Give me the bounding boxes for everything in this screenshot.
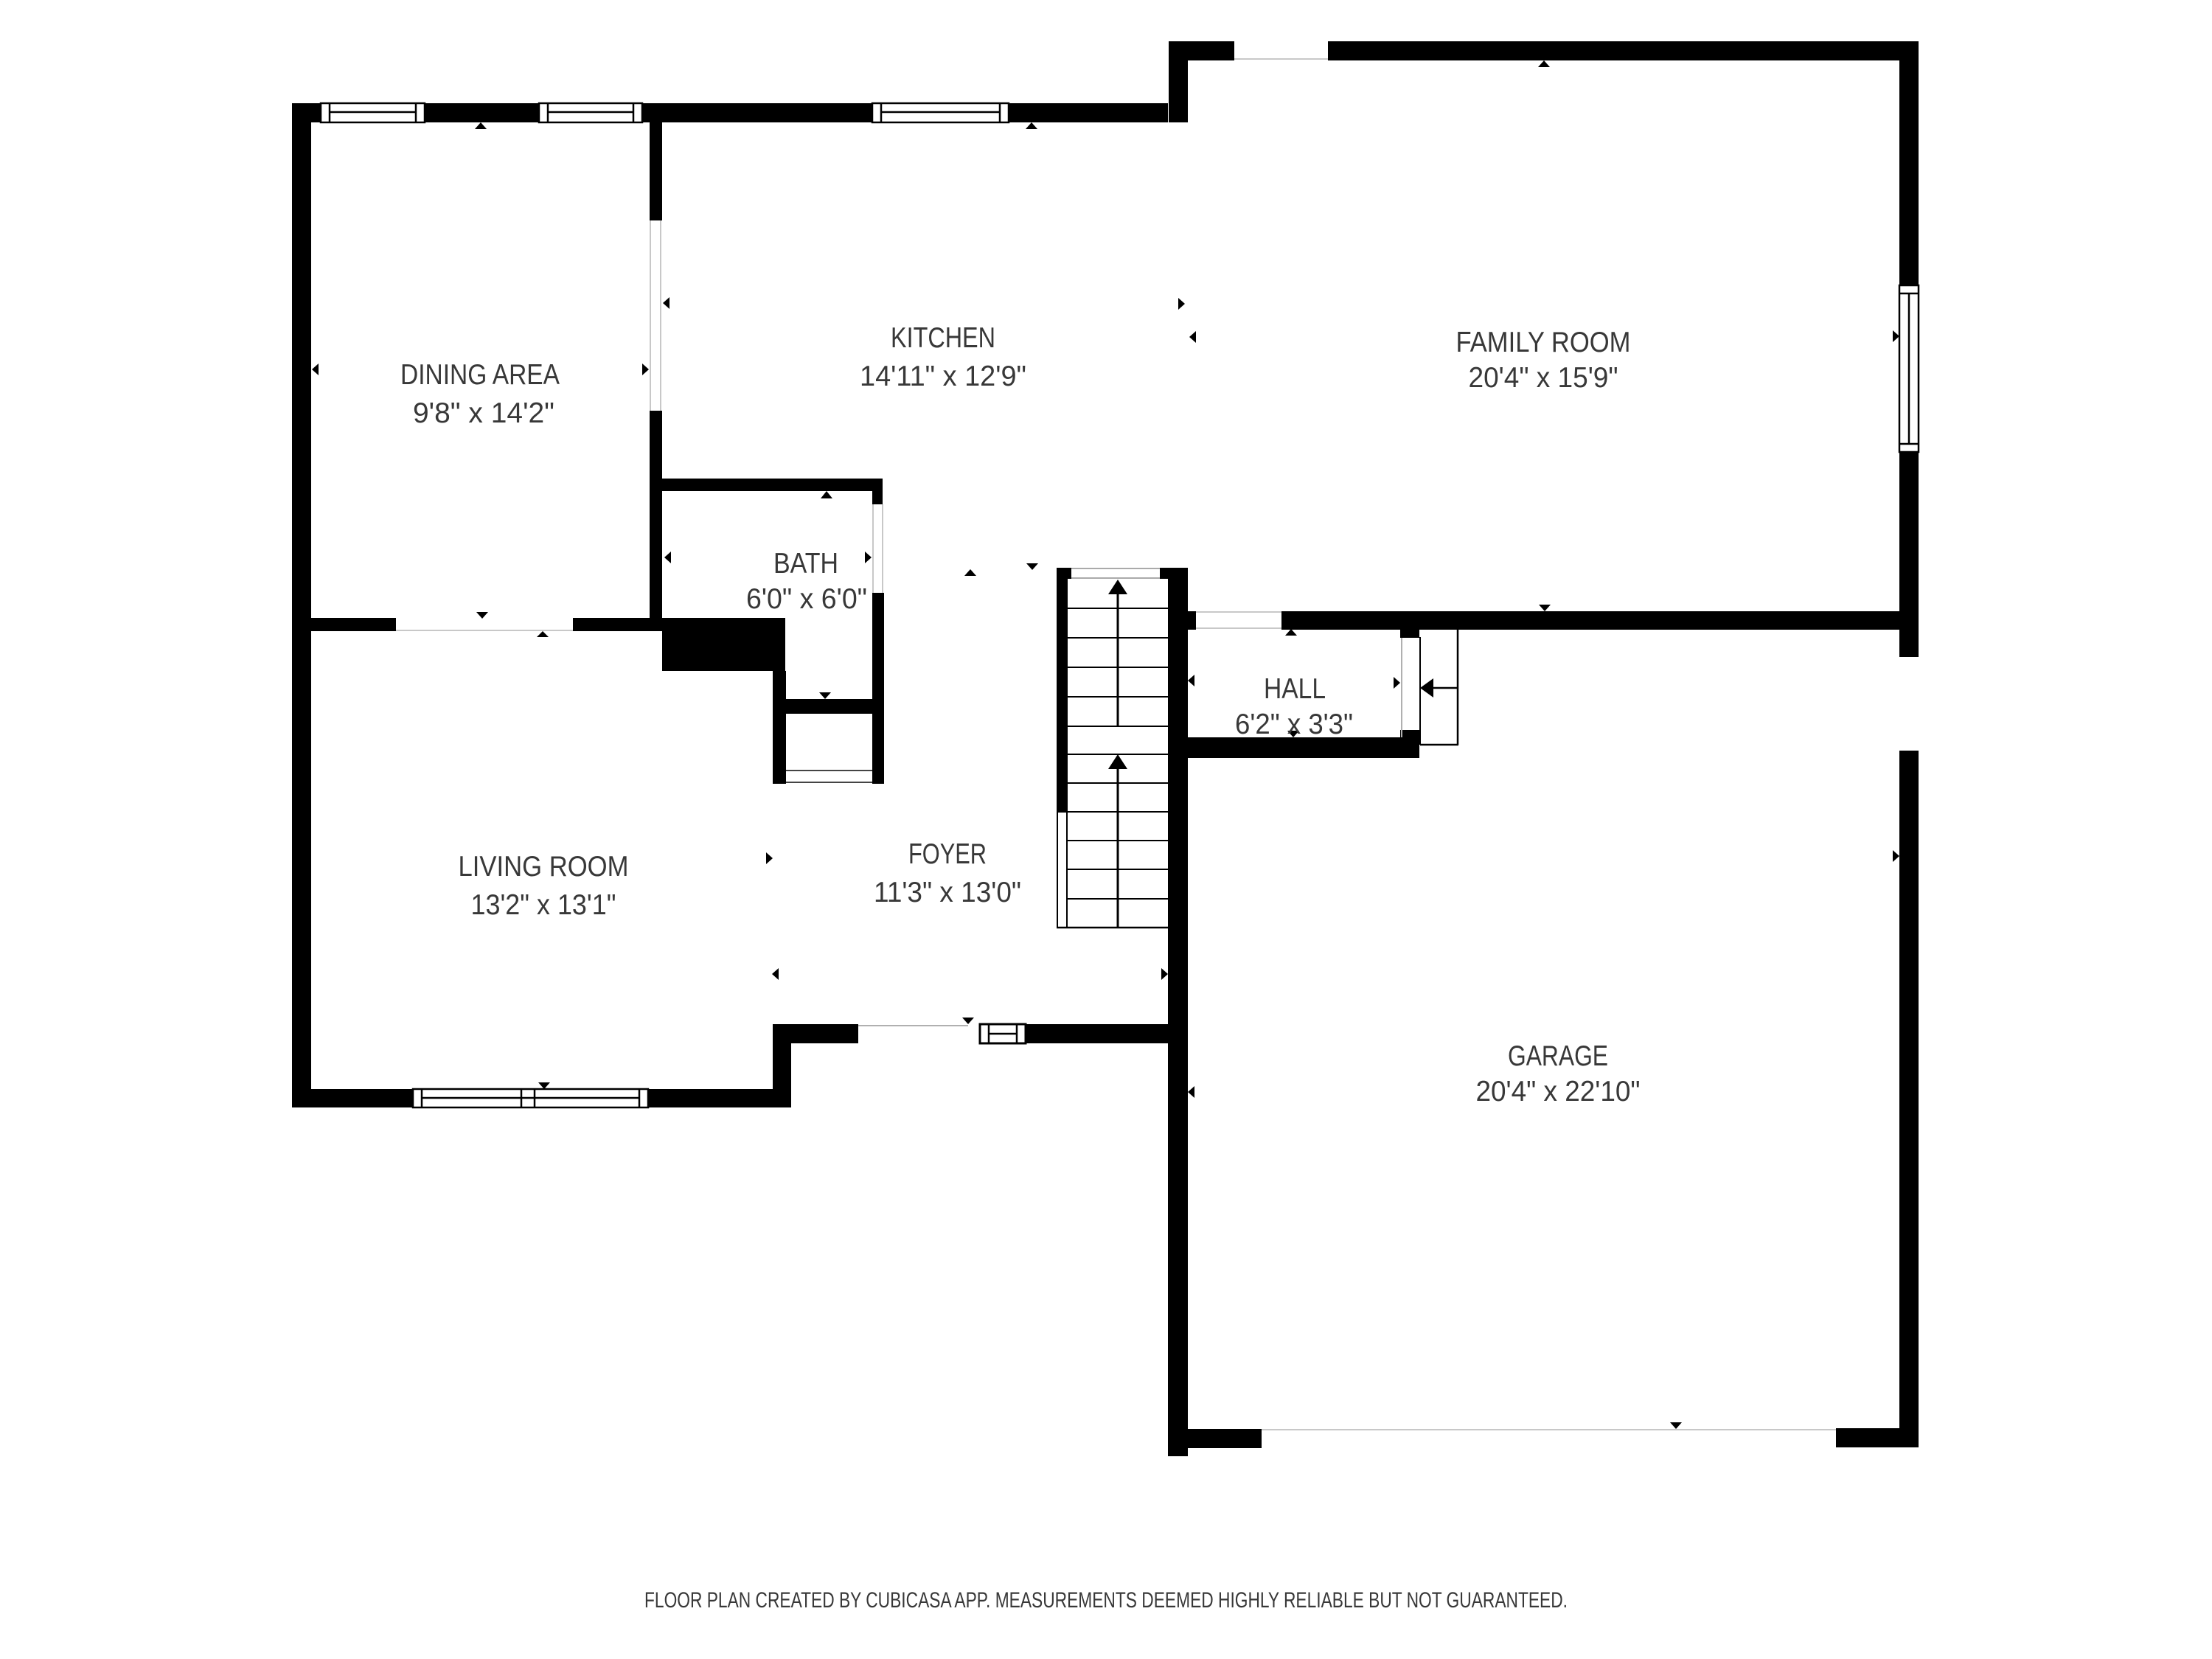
svg-text:11'3" x 13'0": 11'3" x 13'0"	[874, 877, 1021, 908]
svg-text:6'2" x 3'3": 6'2" x 3'3"	[1235, 709, 1353, 740]
svg-text:FOYER: FOYER	[908, 838, 987, 870]
svg-text:KITCHEN: KITCHEN	[891, 322, 995, 354]
svg-text:BATH: BATH	[773, 548, 838, 580]
svg-text:DINING AREA: DINING AREA	[400, 359, 560, 391]
svg-text:20'4" x 15'9": 20'4" x 15'9"	[1469, 362, 1618, 394]
svg-text:FAMILY ROOM: FAMILY ROOM	[1456, 327, 1631, 358]
svg-text:14'11" x 12'9": 14'11" x 12'9"	[860, 361, 1026, 392]
svg-text:6'0" x 6'0": 6'0" x 6'0"	[746, 583, 867, 615]
svg-text:FLOOR PLAN CREATED BY CUBICASA: FLOOR PLAN CREATED BY CUBICASA APP. MEAS…	[644, 1588, 1568, 1613]
svg-text:13'2" x 13'1": 13'2" x 13'1"	[471, 889, 616, 921]
svg-text:20'4" x 22'10": 20'4" x 22'10"	[1476, 1076, 1641, 1107]
svg-text:9'8" x 14'2": 9'8" x 14'2"	[413, 397, 554, 429]
svg-text:LIVING ROOM: LIVING ROOM	[459, 851, 629, 883]
svg-text:GARAGE: GARAGE	[1508, 1040, 1608, 1072]
svg-text:HALL: HALL	[1264, 673, 1326, 705]
